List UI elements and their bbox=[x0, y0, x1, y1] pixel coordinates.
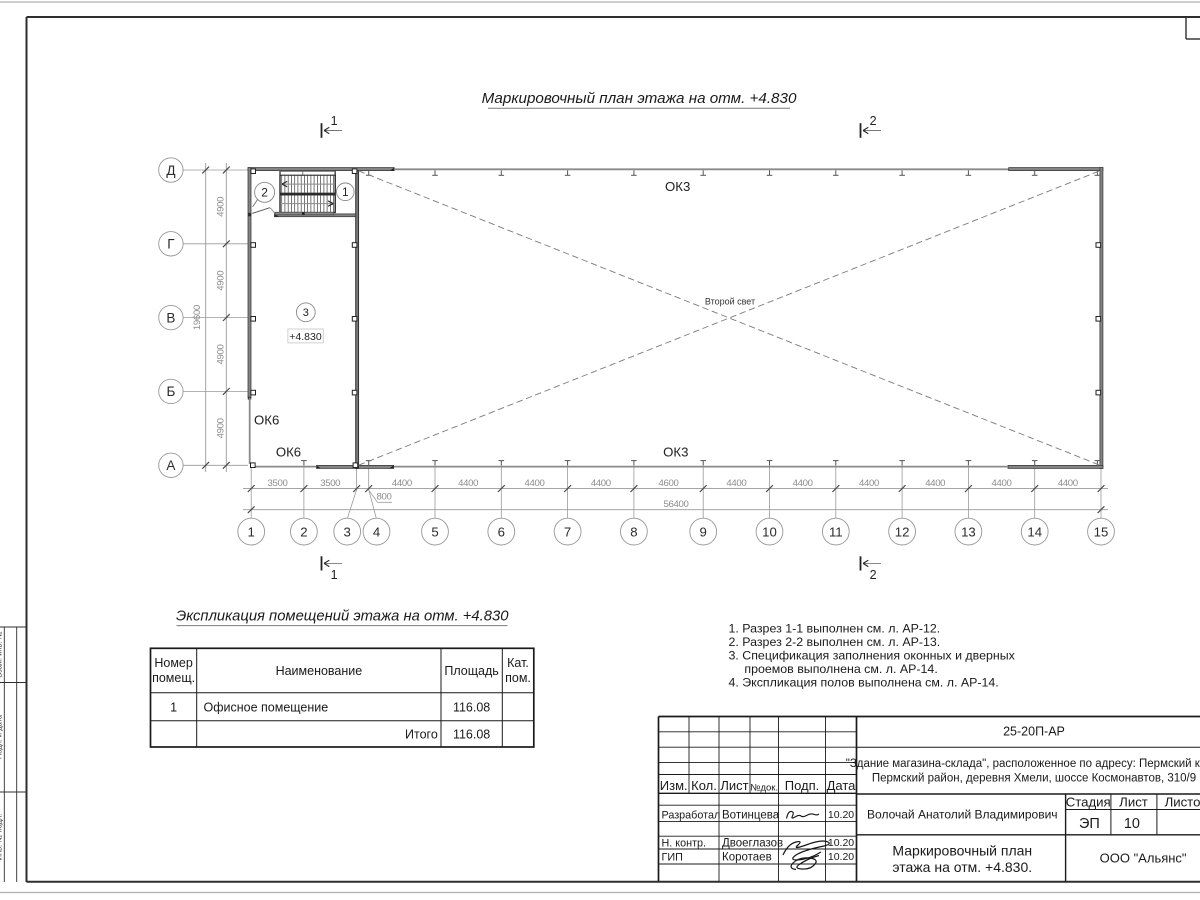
svg-text:Стадия: Стадия bbox=[1066, 794, 1111, 809]
svg-text:Взам. инв. №: Взам. инв. № bbox=[0, 631, 4, 677]
svg-text:4900: 4900 bbox=[215, 418, 226, 438]
svg-text:ОК3: ОК3 bbox=[665, 179, 690, 194]
svg-text:14: 14 bbox=[1027, 524, 1042, 539]
svg-text:Двоеглазов: Двоеглазов bbox=[722, 837, 783, 849]
svg-text:15: 15 bbox=[1094, 524, 1109, 539]
svg-text:8: 8 bbox=[630, 524, 637, 539]
svg-text:№док.: №док. bbox=[750, 782, 778, 793]
svg-text:4400: 4400 bbox=[1058, 478, 1078, 489]
svg-text:Наименование: Наименование bbox=[276, 664, 363, 678]
svg-text:"Здание магазина-склада", расп: "Здание магазина-склада", расположенное … bbox=[846, 758, 1200, 770]
svg-text:4900: 4900 bbox=[215, 271, 226, 291]
svg-text:Лист: Лист bbox=[720, 778, 748, 793]
svg-text:4400: 4400 bbox=[525, 478, 545, 489]
svg-text:ОК6: ОК6 bbox=[276, 445, 301, 460]
svg-text:4400: 4400 bbox=[458, 478, 478, 489]
svg-text:3500: 3500 bbox=[320, 478, 340, 489]
svg-text:1. Разрез 1-1 выполнен см. л.: 1. Разрез 1-1 выполнен см. л. АР-12. bbox=[729, 621, 941, 635]
svg-text:4400: 4400 bbox=[726, 478, 746, 489]
svg-text:Второй свет: Второй свет bbox=[705, 297, 755, 307]
svg-text:Б: Б bbox=[166, 384, 175, 399]
svg-text:19600: 19600 bbox=[192, 305, 203, 330]
svg-text:4: 4 bbox=[373, 524, 380, 539]
svg-text:Кат.: Кат. bbox=[507, 656, 529, 670]
svg-text:1: 1 bbox=[170, 701, 177, 715]
svg-text:Н. контр.: Н. контр. bbox=[662, 837, 707, 849]
svg-text:Коротаев: Коротаев bbox=[722, 852, 772, 864]
svg-text:3500: 3500 bbox=[268, 478, 288, 489]
svg-text:10: 10 bbox=[1124, 816, 1140, 832]
svg-text:3: 3 bbox=[344, 524, 351, 539]
svg-text:Номер: Номер bbox=[154, 656, 193, 670]
svg-text:ОК3: ОК3 bbox=[663, 445, 688, 460]
svg-text:Итого: Итого bbox=[405, 728, 438, 742]
svg-text:Кол.: Кол. bbox=[691, 778, 717, 793]
svg-text:2: 2 bbox=[870, 114, 877, 128]
svg-text:4. Экспликация полов выполнена: 4. Экспликация полов выполнена см. л. АР… bbox=[729, 675, 999, 689]
svg-text:2: 2 bbox=[300, 524, 307, 539]
svg-text:10.20: 10.20 bbox=[828, 837, 854, 849]
svg-text:11: 11 bbox=[829, 524, 843, 539]
svg-text:12: 12 bbox=[895, 524, 910, 539]
svg-text:В: В bbox=[166, 310, 175, 325]
svg-text:10: 10 bbox=[762, 524, 777, 539]
svg-text:10.20: 10.20 bbox=[828, 809, 854, 821]
svg-text:Офисное помещение: Офисное помещение bbox=[204, 701, 329, 715]
svg-text:4400: 4400 bbox=[793, 478, 813, 489]
svg-text:1: 1 bbox=[331, 568, 338, 582]
svg-text:4900: 4900 bbox=[215, 345, 226, 365]
svg-text:116.08: 116.08 bbox=[453, 701, 490, 715]
svg-text:ЭП: ЭП bbox=[1079, 816, 1100, 832]
svg-text:800: 800 bbox=[377, 492, 392, 503]
svg-text:4900: 4900 bbox=[215, 197, 226, 217]
svg-text:9: 9 bbox=[700, 524, 707, 539]
svg-text:4400: 4400 bbox=[992, 478, 1012, 489]
svg-text:2. Разрез 2-2 выполнен см. л.: 2. Разрез 2-2 выполнен см. л. АР-13. bbox=[729, 635, 941, 649]
svg-text:1: 1 bbox=[331, 114, 338, 128]
svg-text:116.08: 116.08 bbox=[453, 728, 490, 742]
svg-text:Маркировочный план: Маркировочный план bbox=[892, 843, 1032, 859]
svg-text:4400: 4400 bbox=[392, 478, 412, 489]
svg-text:1: 1 bbox=[342, 187, 348, 199]
svg-text:4400: 4400 bbox=[859, 478, 879, 489]
svg-text:4600: 4600 bbox=[659, 478, 679, 489]
svg-text:Д: Д bbox=[166, 163, 175, 178]
svg-text:Дата: Дата bbox=[827, 778, 857, 793]
svg-text:ГИП: ГИП bbox=[662, 852, 683, 864]
svg-text:13: 13 bbox=[961, 524, 976, 539]
svg-text:пом.: пом. bbox=[505, 671, 531, 685]
svg-text:помещ.: помещ. bbox=[152, 671, 195, 685]
svg-text:+4.830: +4.830 bbox=[289, 331, 322, 343]
svg-text:2: 2 bbox=[261, 186, 268, 200]
svg-text:Листов: Листов bbox=[1165, 794, 1200, 809]
svg-text:проемов выполнена см. л. АР-14: проемов выполнена см. л. АР-14. bbox=[744, 662, 937, 676]
svg-text:А: А bbox=[166, 458, 175, 473]
svg-text:6: 6 bbox=[498, 524, 505, 539]
svg-text:ООО "Альянс": ООО "Альянс" bbox=[1100, 851, 1187, 866]
svg-text:2: 2 bbox=[870, 568, 877, 582]
svg-text:3: 3 bbox=[303, 307, 309, 319]
svg-text:1: 1 bbox=[248, 524, 255, 539]
svg-text:4400: 4400 bbox=[591, 478, 611, 489]
svg-text:5: 5 bbox=[431, 524, 438, 539]
svg-text:этажа на отм. +4.830.: этажа на отм. +4.830. bbox=[892, 859, 1032, 875]
svg-text:4400: 4400 bbox=[925, 478, 945, 489]
svg-text:ОК6: ОК6 bbox=[254, 412, 279, 427]
svg-text:7: 7 bbox=[564, 524, 571, 539]
svg-text:Подп.: Подп. bbox=[785, 778, 820, 793]
svg-text:56400: 56400 bbox=[664, 499, 689, 510]
svg-text:Изм.: Изм. bbox=[660, 778, 688, 793]
svg-text:Экспликация помещений этажа на: Экспликация помещений этажа на отм. +4.8… bbox=[176, 609, 509, 625]
svg-text:Подп. и дата: Подп. и дата bbox=[0, 714, 4, 759]
svg-text:Площадь: Площадь bbox=[444, 664, 498, 678]
svg-text:3. Спецификация заполнения око: 3. Спецификация заполнения оконных и две… bbox=[729, 648, 1016, 662]
svg-text:25-20П-АР: 25-20П-АР bbox=[1003, 724, 1065, 738]
svg-text:Г: Г bbox=[167, 237, 175, 252]
svg-text:Маркировочный план этажа на от: Маркировочный план этажа на отм. +4.830 bbox=[482, 90, 797, 107]
svg-text:Лист: Лист bbox=[1119, 794, 1148, 809]
svg-text:Волочай Анатолий Владимирович: Волочай Анатолий Владимирович bbox=[867, 808, 1058, 822]
svg-text:Инв. № подл.: Инв. № подл. bbox=[0, 814, 4, 861]
svg-text:Пермский район, деревня Хмели,: Пермский район, деревня Хмели, шоссе Кос… bbox=[872, 773, 1196, 785]
svg-text:Разработал: Разработал bbox=[662, 809, 721, 821]
svg-text:10.20: 10.20 bbox=[828, 851, 854, 863]
svg-text:Вотинцева: Вотинцева bbox=[722, 809, 780, 821]
